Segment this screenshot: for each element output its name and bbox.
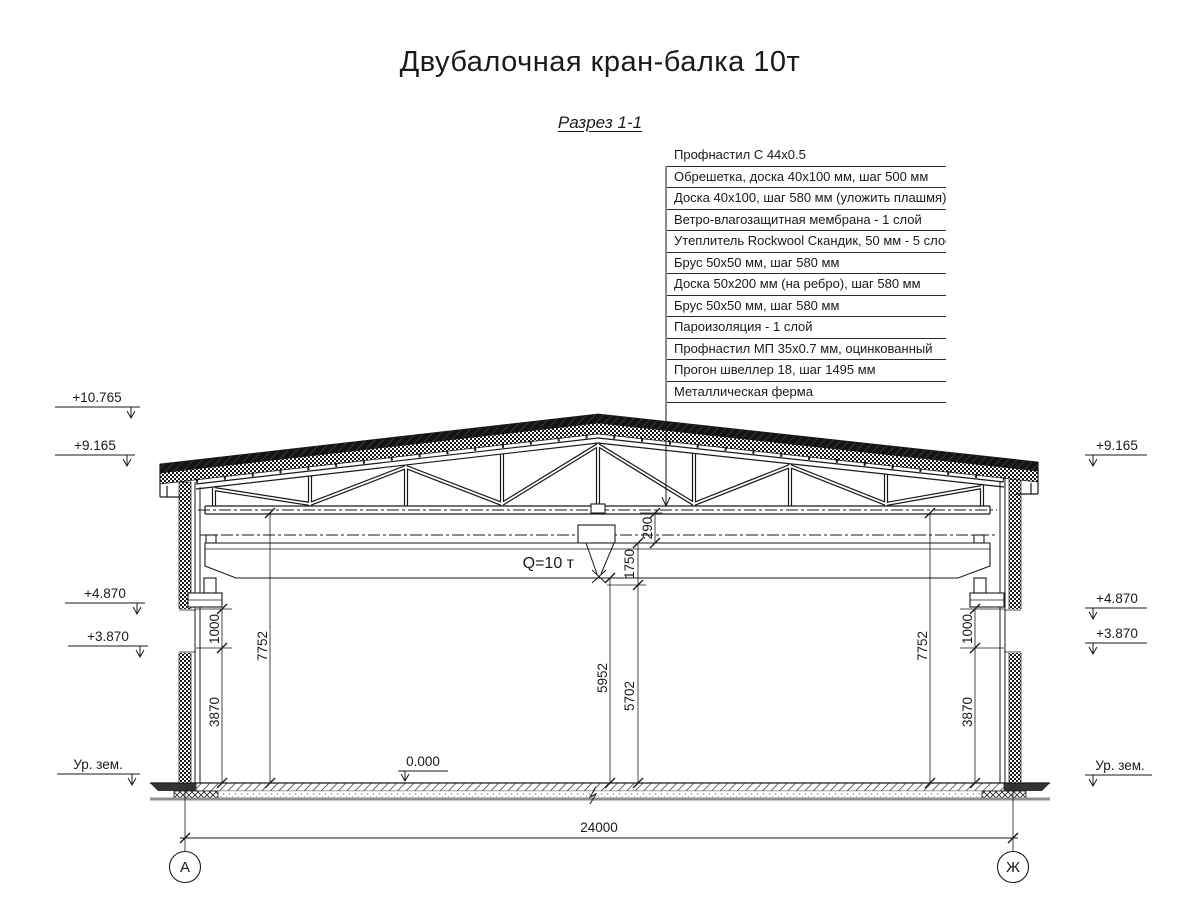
roof-layer-row: Доска 40х100, шаг 580 мм (уложить плашмя… <box>667 188 946 210</box>
end-truck-right <box>974 578 986 593</box>
roof-layer-row: Металлическая ферма <box>667 382 946 404</box>
axis-right-label: Ж <box>1006 859 1020 876</box>
axis-markers: А Ж <box>170 852 1029 883</box>
dim-right-rail-zone: 1000 <box>960 614 975 644</box>
svg-text:+4.870: +4.870 <box>1096 591 1138 606</box>
svg-text:Ур. зем.: Ур. зем. <box>73 757 123 772</box>
roof-layer-row: Прогон швеллер 18, шаг 1495 мм <box>667 360 946 382</box>
dim-under-girder: 5952 <box>595 663 610 693</box>
apex-gusset <box>591 504 605 513</box>
floor-slab <box>150 783 1050 804</box>
elevation-left-eave: +9.165 <box>55 438 135 466</box>
elevation-right-bracket: +3.870 <box>1085 626 1147 654</box>
roof-layer-row: Брус 50х50 мм, шаг 580 мм <box>667 253 946 275</box>
rail-bracket-left <box>188 593 222 607</box>
dim-left-clear-height: 7752 <box>255 631 270 661</box>
svg-text:0.000: 0.000 <box>406 754 440 769</box>
crane-capacity-label: Q=10 т <box>523 555 575 572</box>
svg-text:+3.870: +3.870 <box>87 629 129 644</box>
dim-left-rail-zone: 1000 <box>207 614 222 644</box>
axis-left-label: А <box>180 859 190 876</box>
wall-right <box>1000 478 1022 783</box>
roof-layer-row: Брус 50х50 мм, шаг 580 мм <box>667 296 946 318</box>
column-right <box>1000 478 1005 783</box>
elevation-left-bracket: +3.870 <box>68 629 148 657</box>
elevation-left-ground: Ур. зем. <box>57 757 140 785</box>
dim-hook-lift: 5702 <box>622 681 637 711</box>
dim-right-lower-wall: 3870 <box>960 697 975 727</box>
roof-layer-row: Доска 50х200 мм (на ребро), шаг 580 мм <box>667 274 946 296</box>
roof-layer-row: Пароизоляция - 1 слой <box>667 317 946 339</box>
svg-text:+9.165: +9.165 <box>74 438 116 453</box>
end-truck-left <box>204 578 216 593</box>
section-drawing: Q=10 т 1000 3870 7752 5952 1750 5702 290… <box>0 0 1200 900</box>
elevation-right-eave: +9.165 <box>1085 438 1147 466</box>
dim-girder-zone: 1750 <box>622 549 637 579</box>
wall-left <box>178 482 200 783</box>
dim-left-lower-wall: 3870 <box>207 697 222 727</box>
svg-text:Ур. зем.: Ур. зем. <box>1095 758 1145 773</box>
crane-girder <box>205 543 990 578</box>
elevation-left-ridge: +10.765 <box>55 390 140 418</box>
roof-layer-row: Ветро-влагозащитная мембрана - 1 слой <box>667 210 946 232</box>
rail-bracket-right <box>970 593 1004 607</box>
elevation-left-rail-top: +4.870 <box>65 586 145 614</box>
column-left <box>195 482 200 783</box>
roof-layer-row: Утеплитель Rockwool Скандик, 50 мм - 5 с… <box>667 231 946 253</box>
svg-text:+4.870: +4.870 <box>84 586 126 601</box>
elevation-right-rail-top: +4.870 <box>1085 591 1147 619</box>
svg-text:+9.165: +9.165 <box>1096 438 1138 453</box>
svg-text:+3.870: +3.870 <box>1096 626 1138 641</box>
elevation-floor-zero: 0.000 <box>398 754 448 781</box>
dim-span: 24000 <box>580 820 618 835</box>
hoist-trolley <box>578 525 615 543</box>
svg-text:+10.765: +10.765 <box>72 390 121 405</box>
roof-layer-row: Профнастил С 44х0.5 <box>667 145 946 167</box>
roof-layer-row: Обрешетка, доска 40х100 мм, шаг 500 мм <box>667 167 946 189</box>
dim-right-clear-height: 7752 <box>915 631 930 661</box>
roof-layers-table: Профнастил С 44х0.5 Обрешетка, доска 40х… <box>667 145 946 403</box>
dim-truss-clearance: 290 <box>640 517 655 540</box>
drawing-sheet: Двубалочная кран-балка 10т Разрез 1-1 <box>0 0 1200 900</box>
elevation-right-ground: Ур. зем. <box>1085 758 1152 786</box>
roof-layer-row: Профнастил МП 35х0.7 мм, оцинкованный <box>667 339 946 361</box>
crane: Q=10 т <box>188 525 1004 607</box>
